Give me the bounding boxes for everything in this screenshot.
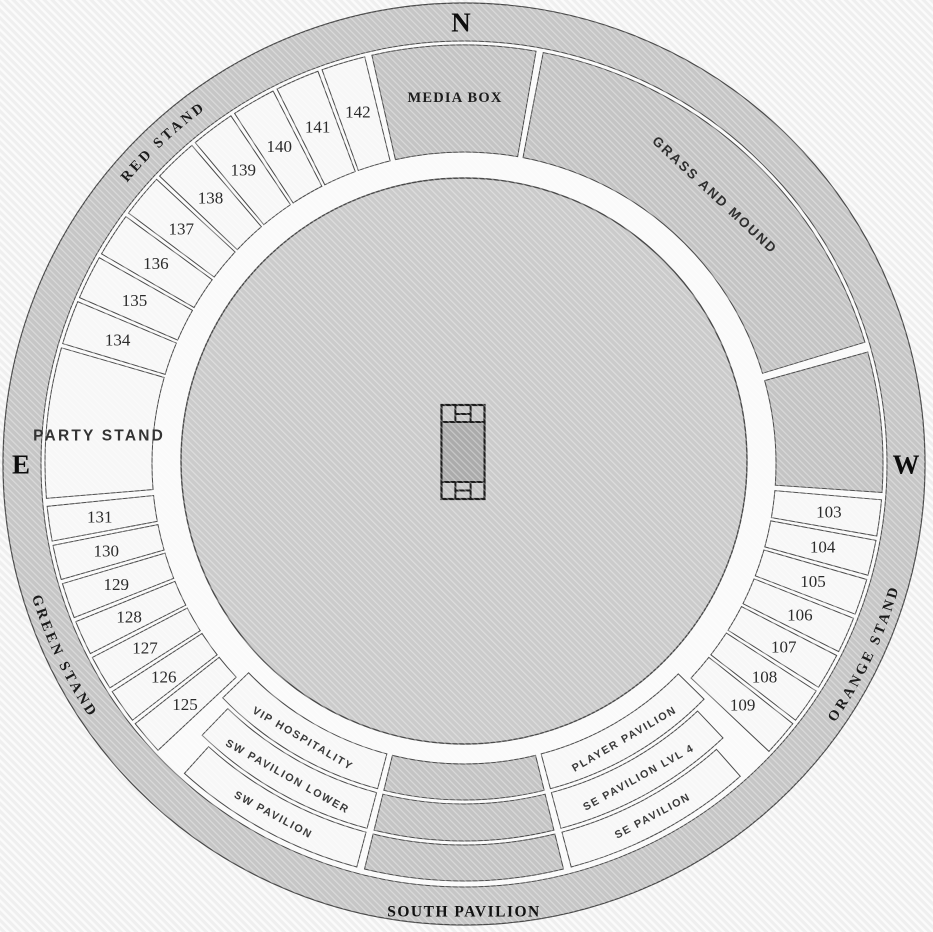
label-section-140: 140 (266, 137, 292, 156)
label-section-141: 141 (305, 117, 331, 136)
label-section-109: 109 (730, 695, 756, 714)
stadium-seat-map: MEDIA BOXGRASS AND MOUND1031041051061071… (0, 0, 933, 932)
label-south-pavilion: SOUTH PAVILION (387, 903, 541, 920)
label-section-108: 108 (752, 667, 778, 686)
label-section-137: 137 (169, 219, 195, 238)
cricket-pitch (442, 405, 485, 499)
label-section-129: 129 (103, 575, 129, 594)
label-section-125: 125 (172, 695, 198, 714)
label-section-138: 138 (198, 188, 224, 207)
label-section-126: 126 (151, 668, 177, 687)
compass-north: N (451, 7, 471, 37)
label-section-128: 128 (116, 608, 142, 627)
map-shapes-layer (3, 3, 925, 925)
label-section-103: 103 (816, 502, 842, 521)
label-media-box: MEDIA BOX (408, 90, 503, 106)
label-party-stand: PARTY STAND (33, 428, 165, 445)
label-section-104: 104 (810, 537, 836, 556)
label-section-127: 127 (132, 638, 158, 657)
compass-east: E (12, 449, 30, 479)
label-section-130: 130 (94, 541, 120, 560)
label-section-134: 134 (105, 331, 131, 350)
label-section-105: 105 (800, 572, 826, 591)
label-section-107: 107 (771, 637, 797, 656)
label-section-142: 142 (345, 103, 371, 122)
label-section-135: 135 (122, 291, 148, 310)
label-section-106: 106 (787, 605, 813, 624)
label-section-139: 139 (231, 160, 257, 179)
pitch-strip (442, 422, 485, 482)
label-section-136: 136 (143, 254, 169, 273)
stadium-map-page: MEDIA BOXGRASS AND MOUND1031041051061071… (0, 0, 933, 932)
compass-west: W (893, 449, 920, 479)
label-section-131: 131 (87, 507, 113, 526)
